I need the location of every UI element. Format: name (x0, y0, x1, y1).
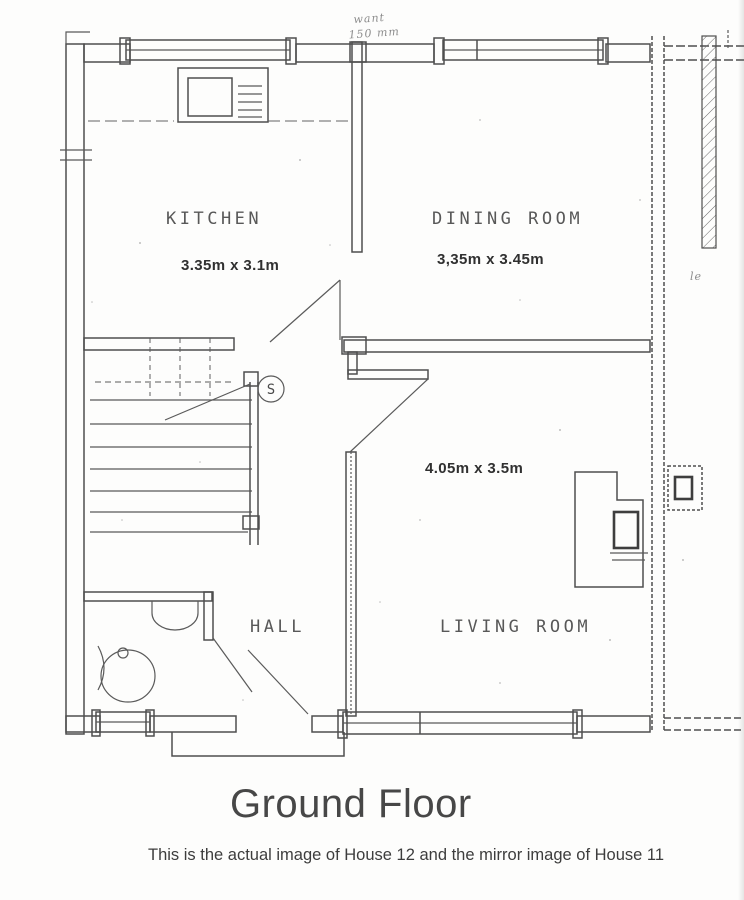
toilet-icon (98, 646, 155, 702)
internal-walls (84, 42, 650, 716)
neighbour-wall-hatched (702, 36, 716, 248)
plan-title: Ground Floor (230, 782, 472, 827)
wc-window (92, 710, 154, 736)
hall-label: HALL (250, 617, 305, 637)
smoke-detector-letter: S (267, 382, 275, 398)
kitchen-door-swing (270, 280, 340, 342)
door-swings (213, 280, 428, 692)
handwritten-note-line2: 150 mm (348, 25, 400, 42)
handwritten-note: want 150 mm (347, 10, 400, 42)
handwritten-side-note: le (690, 270, 702, 283)
living-room-label: LIVING ROOM (440, 617, 591, 637)
plan-caption: This is the actual image of House 12 and… (148, 846, 664, 865)
handwritten-note-line1: want (353, 11, 385, 26)
neighbour-fireplace-icon (668, 466, 702, 510)
handrail (165, 384, 250, 420)
smoke-detector-symbol: S (258, 376, 284, 402)
corner-notch (66, 32, 90, 44)
dining-room-window (434, 38, 608, 64)
fireplace-icon (575, 472, 648, 587)
kitchen-dimensions: 3.35m x 3.1m (181, 257, 279, 274)
party-wall (652, 30, 728, 730)
floor-plan: S KITCHEN 3.35m x 3.1m DINING ROOM 3,35m… (0, 0, 744, 764)
front-door (172, 650, 344, 756)
kitchen-window (120, 38, 296, 64)
living-room-window (338, 710, 582, 738)
living-room-dimensions: 4.05m x 3.5m (425, 460, 523, 477)
dining-room-label: DINING ROOM (432, 209, 583, 229)
front-door-swing (248, 650, 308, 714)
scanned-floor-plan-page: S KITCHEN 3.35m x 3.1m DINING ROOM 3,35m… (0, 0, 744, 900)
basin-icon (152, 601, 198, 630)
living-room-door-swing (350, 379, 428, 452)
newel-post (244, 372, 258, 386)
stairs (90, 338, 259, 545)
porch-step (172, 732, 344, 756)
kitchen-label: KITCHEN (166, 209, 262, 229)
wc-door-swing (213, 638, 252, 692)
scan-noise (91, 119, 684, 701)
newel-post (243, 516, 259, 529)
outer-walls (60, 32, 744, 734)
dining-room-dimensions: 3,35m x 3.45m (437, 251, 544, 268)
sink-unit-icon (178, 68, 268, 122)
